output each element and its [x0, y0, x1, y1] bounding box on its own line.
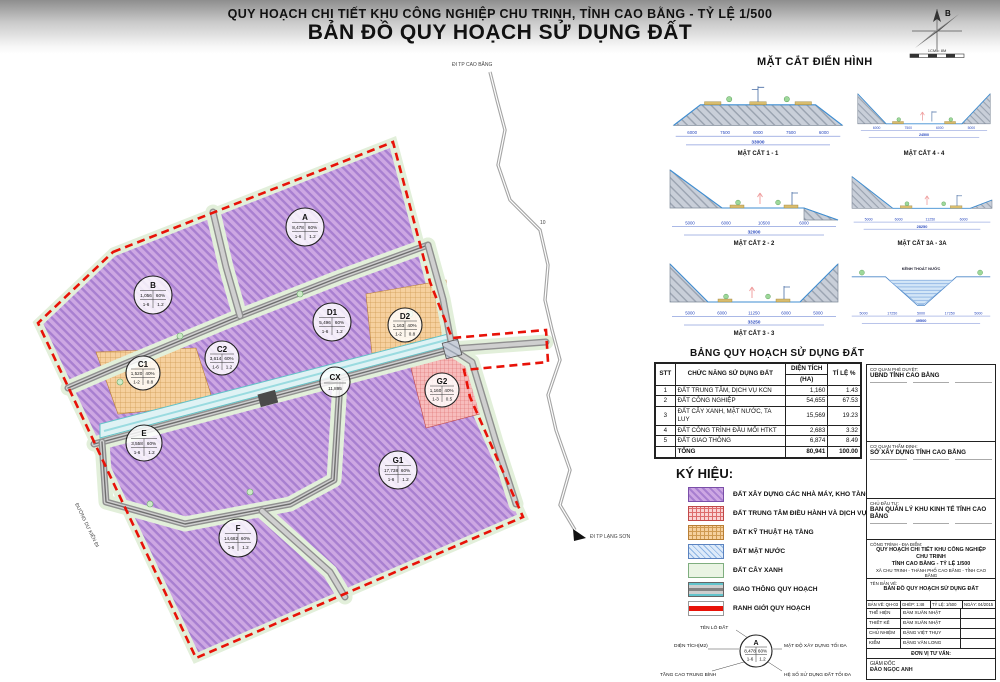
- svg-text:10500: 10500: [758, 221, 771, 226]
- svg-text:6000: 6000: [687, 130, 697, 135]
- zone-name: D1: [327, 308, 338, 317]
- signature-lines: [870, 523, 992, 524]
- zone-far: 1.2: [242, 545, 249, 550]
- zone-name: CX: [329, 373, 341, 382]
- section-drawing: 5000 6000 11250 6000 5000 33250: [663, 252, 845, 328]
- sheet-info-row: BẢN VẼ: QH-03 GHÉP: 1:48 TỶ LỆ: 1/500 NG…: [867, 601, 995, 609]
- zone-far: 1.2: [402, 477, 409, 482]
- svg-text:6000: 6000: [753, 130, 763, 135]
- legend-label: ĐẤT MẶT NƯỚC: [733, 548, 785, 555]
- red-grid-swatch: [688, 506, 724, 521]
- cross-sections-heading: MẶT CẮT ĐIỂN HÌNH: [757, 56, 873, 68]
- zone-name: A: [302, 213, 308, 222]
- zone-label-CX: CX 11,895: [320, 367, 350, 397]
- svg-text:6000: 6000: [819, 130, 829, 135]
- svg-text:5000: 5000: [685, 311, 695, 316]
- zone-floors: 1-6: [134, 450, 141, 455]
- credit-label: THỂ HIỆN: [867, 609, 901, 619]
- label-road-number: 10: [540, 220, 546, 226]
- zone-far: 1.2: [336, 329, 343, 334]
- south-direction-arrow: [573, 529, 586, 541]
- svg-text:11250: 11250: [925, 217, 935, 221]
- director-box: GIÁM ĐỐC ĐÀO NGỌC ANH: [867, 659, 995, 675]
- zone-label-G2: G2 1,160 40% 1-3 0.5: [425, 373, 459, 407]
- sheet-subtitle: QUY HOẠCH CHI TIẾT KHU CÔNG NGHIỆP CHU T…: [0, 0, 1000, 21]
- legend-label: ĐẤT CÂY XANH: [733, 567, 783, 574]
- example-zone-circle: A 8,478 60% 1-6 1.2: [740, 635, 772, 667]
- land-use-map: ĐI TP CAO BẰNG 10 ĐI TP LẠNG SƠN ĐƯỜNG D…: [0, 52, 660, 682]
- svg-text:5000: 5000: [860, 311, 868, 315]
- svg-text:6000: 6000: [895, 217, 903, 221]
- key-far-label: HỆ SỐ SỬ DỤNG ĐẤT TỐI ĐA: [784, 670, 852, 678]
- zone-floors: 1-6: [295, 234, 302, 239]
- svg-text:5000: 5000: [917, 311, 925, 315]
- land-use-table-title: BẢNG QUY HOẠCH SỬ DỤNG ĐẤT: [690, 348, 864, 359]
- zone-density: 40%: [145, 371, 154, 376]
- title-block: CƠ QUAN PHÊ DUYỆT: UBND TỈNH CAO BẰNG CƠ…: [866, 364, 996, 680]
- project-line1: QUY HOẠCH CHI TIẾT KHU CÔNG NGHIỆP CHU T…: [870, 547, 992, 561]
- cross-section-1-1: 6000 7500 6000 7500 6000 33000 MẶT CẮT 1…: [663, 76, 853, 157]
- section-drawing: 6000 7500 6000 7500 6000 33000: [663, 76, 853, 148]
- zone-label-C1: C1 1,520 40% 1-2 0.8: [126, 356, 160, 390]
- svg-text:7500: 7500: [904, 126, 912, 130]
- section-drawing: KÊNH THOÁT NƯỚC 5000 17250 5000 17250 50…: [845, 252, 997, 332]
- svg-text:6000: 6000: [721, 221, 731, 226]
- svg-text:11250: 11250: [748, 311, 760, 316]
- zone-floors: 1-6: [228, 545, 235, 550]
- svg-text:5000: 5000: [968, 126, 976, 130]
- zone-far: 1.2: [148, 450, 155, 455]
- svg-text:6000: 6000: [717, 311, 727, 316]
- key-density-label: MẬT ĐỘ XÂY DỰNG TỐI ĐA: [784, 642, 848, 649]
- key-floors-label: TẦNG CAO TRUNG BÌNH: [660, 671, 717, 678]
- project-line2: TỈNH CAO BẰNG - TỶ LỆ 1/500: [870, 561, 992, 568]
- drawing-name-box: TÊN BẢN VẼ: BẢN ĐỒ QUY HOẠCH SỬ DỤNG ĐẤT: [867, 579, 995, 601]
- section-drawing: 5000 6000 10500 6000 32000: [663, 162, 845, 238]
- legend-heading: KÝ HIỆU:: [676, 466, 733, 481]
- zone-area: 1,163: [393, 323, 405, 328]
- section-caption: MẶT CẮT 3A - 3A: [847, 241, 997, 247]
- legend-label: ĐẤT XÂY DỰNG CÁC NHÀ MÁY, KHO TÀNG: [733, 491, 871, 498]
- credits-grid: THỂ HIỆN ĐÀM XUÂN NHẬT THIẾT KẾ ĐÀM XUÂN…: [867, 609, 995, 649]
- zone-label-key: A 8,478 60% 1-6 1.2 TÊN LÔ ĐẤT DIỆN TÍCH…: [638, 622, 878, 680]
- svg-text:49500: 49500: [916, 318, 927, 323]
- svg-text:28250: 28250: [917, 225, 928, 229]
- table-row: 4ĐẤT CÔNG TRÌNH ĐẦU MỐI HTKT 2,6833.32: [655, 425, 861, 436]
- label-road-north: ĐI TP CAO BẰNG: [452, 60, 492, 68]
- review-name: SỞ XÂY DỰNG TỈNH CAO BẰNG: [870, 449, 992, 456]
- zone-label-D1: D1 5,496 60% 1-6 1.2: [313, 303, 351, 341]
- cross-section-3-3: 5000 6000 11250 6000 5000 33250 MẶT CẮT …: [663, 252, 845, 337]
- col-header-stt: STT: [655, 363, 675, 385]
- legend-label: GIAO THÔNG QUY HOẠCH: [733, 586, 818, 593]
- legend-item: ĐẤT MẶT NƯỚC: [688, 544, 785, 559]
- cross-section-2-2: 5000 6000 10500 6000 32000 MẶT CẮT 2 - 2: [663, 162, 845, 247]
- director-name: ĐÀO NGỌC ANH: [870, 667, 992, 673]
- svg-text:33000: 33000: [751, 139, 764, 145]
- zone-density: 60%: [241, 536, 250, 541]
- project-box: CÔNG TRÌNH - ĐỊA ĐIỂM: QUY HOẠCH CHI TIẾ…: [867, 540, 995, 579]
- zone-floors: 1-6: [388, 477, 395, 482]
- zone-area: 17,738: [384, 468, 398, 473]
- table-row: 1ĐẤT TRUNG TÂM, DỊCH VỤ KCN 1,1601.43: [655, 385, 861, 396]
- scale-bar: [910, 54, 964, 58]
- sheet-scale: TỶ LỆ: 1/500: [931, 601, 963, 609]
- svg-text:6000: 6000: [781, 311, 791, 316]
- label-planned-road: ĐƯỜNG DỰ KIẾN ĐI: [73, 502, 101, 549]
- label-road-south: ĐI TP LẠNG SƠN: [590, 534, 631, 540]
- zone-floors: 1-6: [212, 365, 219, 370]
- zone-name: B: [150, 281, 156, 290]
- credit-value: ĐẶNG VĂN LONG: [901, 639, 961, 649]
- svg-text:5000: 5000: [974, 311, 982, 315]
- sheet-title: BẢN ĐỒ QUY HOẠCH SỬ DỤNG ĐẤT: [0, 21, 1000, 45]
- zone-name: G1: [393, 456, 404, 465]
- table-row: 2ĐẤT CÔNG NGHIỆP 54,65567.53: [655, 396, 861, 407]
- project-line3: XÃ CHU TRINH - THÀNH PHỐ CAO BẰNG - TỈNH…: [870, 568, 992, 578]
- zone-area: 14,682: [224, 536, 238, 541]
- zone-name: F: [236, 524, 241, 533]
- blue-hatch-swatch: [688, 544, 724, 559]
- orange-grid-swatch: [688, 525, 724, 540]
- zone-far: 1.2: [157, 302, 164, 307]
- zone-area: 1,520: [131, 371, 143, 376]
- legend-label: RANH GIỚI QUY HOẠCH: [733, 605, 810, 612]
- zone-label-A: A 8,478 60% 1-6 1.2: [286, 208, 324, 246]
- road-swatch: [688, 582, 724, 597]
- zone-floors: 1-2: [395, 332, 402, 337]
- table-row: 5ĐẤT GIAO THÔNG 6,8748.49: [655, 436, 861, 447]
- zone-label-C2: C2 3,614 60% 1-6 1.2: [205, 341, 239, 375]
- cross-section-channel: KÊNH THOÁT NƯỚC 5000 17250 5000 17250 50…: [845, 252, 997, 337]
- investor-name: BAN QUẢN LÝ KHU KINH TẾ TỈNH CAO BẰNG: [870, 506, 992, 520]
- sheet-date: NGÀY: 04/2015: [963, 601, 995, 609]
- svg-text:6000: 6000: [799, 221, 809, 226]
- section-caption: MẶT CẮT 3 - 3: [663, 331, 845, 337]
- purple-hatch-swatch: [688, 487, 724, 502]
- legend-label: ĐẤT KỸ THUẬT HẠ TẦNG: [733, 529, 814, 536]
- zone-name: C2: [217, 345, 228, 354]
- zone-name: G2: [437, 377, 448, 386]
- zone-label-F: F 14,682 60% 1-6 1.2: [219, 519, 257, 557]
- scale-label: 1CM = 8M: [928, 48, 947, 53]
- zone-far: 0.5: [446, 397, 453, 402]
- key-name-label: TÊN LÔ ĐẤT: [700, 623, 728, 631]
- cross-section-3a-3a: 5000 6000 11250 6000 28250 MẶT CẮT 3A - …: [847, 162, 997, 247]
- signature-lines: [870, 382, 992, 383]
- zone-density: 60%: [335, 320, 344, 325]
- svg-text:6000: 6000: [936, 126, 944, 130]
- north-compass-icon: B 1CM = 8M: [902, 6, 972, 62]
- legend-item: ĐẤT XÂY DỰNG CÁC NHÀ MÁY, KHO TÀNG: [688, 487, 871, 502]
- section-caption: MẶT CẮT 1 - 1: [663, 151, 853, 157]
- zone-density: 40%: [444, 388, 453, 393]
- sheet-header: QUY HOẠCH CHI TIẾT KHU CÔNG NGHIỆP CHU T…: [0, 0, 1000, 54]
- plan-sheet: QUY HOẠCH CHI TIẾT KHU CÔNG NGHIỆP CHU T…: [0, 0, 1000, 682]
- svg-text:33250: 33250: [748, 320, 761, 325]
- channel-label: KÊNH THOÁT NƯỚC: [902, 266, 941, 271]
- zone-density: 60%: [308, 225, 317, 230]
- svg-text:32000: 32000: [748, 230, 761, 235]
- section-caption: MẶT CẮT 4 - 4: [853, 151, 995, 157]
- legend-item: ĐẤT KỸ THUẬT HẠ TẦNG: [688, 525, 814, 540]
- zone-far: 0.8: [147, 380, 154, 385]
- approve-name: UBND TỈNH CAO BẰNG: [870, 372, 992, 379]
- zone-label-G1: G1 17,738 60% 1-6 1.2: [379, 451, 417, 489]
- section-drawing: 5000 6000 11250 6000 28250: [847, 162, 997, 238]
- zone-area: 11,895: [328, 386, 342, 391]
- zone-name: E: [141, 429, 147, 438]
- table-row: 3ĐẤT CÂY XANH, MẶT NƯỚC, TA LUY 15,56919…: [655, 407, 861, 426]
- zone-area: 3,614: [210, 356, 222, 361]
- zone-area: 1,056: [140, 293, 152, 298]
- zone-area: 1,160: [430, 388, 442, 393]
- zone-far: 0.8: [409, 332, 416, 337]
- zone-floors: 1-6: [322, 329, 329, 334]
- drawing-name: BẢN ĐỒ QUY HOẠCH SỬ DỤNG ĐẤT: [870, 586, 992, 593]
- legend-item: GIAO THÔNG QUY HOẠCH: [688, 582, 818, 597]
- zone-density: 40%: [407, 323, 416, 328]
- svg-text:17250: 17250: [945, 311, 955, 315]
- svg-text:17250: 17250: [887, 311, 897, 315]
- zone-floors: 1-3: [432, 397, 439, 402]
- example-area: 8,478: [744, 649, 756, 654]
- table-total-row: TỔNG 80,941100.00: [655, 447, 861, 458]
- key-area-label: DIỆN TÍCH(M2): [674, 641, 708, 649]
- zone-density: 60%: [147, 441, 156, 446]
- zone-area: 8,478: [292, 225, 304, 230]
- approving-agency-box: CƠ QUAN PHÊ DUYỆT: UBND TỈNH CAO BẰNG: [867, 365, 995, 442]
- svg-text:7500: 7500: [786, 130, 796, 135]
- svg-text:5000: 5000: [685, 221, 695, 226]
- credit-value: ĐÀM XUÂN NHẬT: [901, 619, 961, 629]
- svg-text:6000: 6000: [960, 217, 968, 221]
- zone-area: 5,496: [319, 320, 331, 325]
- zone-label-E: E 3,558 60% 1-6 1.2: [126, 425, 162, 461]
- example-floors: 1-6: [747, 657, 754, 662]
- col-header-area-unit: (HA): [786, 374, 828, 385]
- zone-density: 60%: [401, 468, 410, 473]
- red-line-swatch: [688, 601, 724, 616]
- svg-text:7500: 7500: [720, 130, 730, 135]
- section-drawing: 6000 7500 6000 5000 24500: [853, 76, 995, 148]
- compass-north-label: B: [945, 9, 951, 18]
- zone-density: 60%: [224, 356, 233, 361]
- zone-name: C1: [138, 360, 149, 369]
- credit-value: ĐẶNG VIỆT THỤY: [901, 629, 961, 639]
- zone-label-D2: D2 1,163 40% 1-2 0.8: [388, 308, 422, 342]
- sheet-number: BẢN VẼ: QH-03: [867, 601, 901, 609]
- consultant-label: ĐƠN VỊ TƯ VẤN:: [867, 649, 995, 659]
- zone-name: D2: [400, 312, 411, 321]
- credit-value: ĐÀM XUÂN NHẬT: [901, 609, 961, 619]
- land-use-table: STT CHỨC NĂNG SỬ DỤNG ĐẤT DIỆN TÍCH TỈ L…: [654, 362, 862, 459]
- legend-item: RANH GIỚI QUY HOẠCH: [688, 601, 810, 616]
- zone-floors: 1-2: [133, 380, 140, 385]
- investor-box: CHỦ ĐẦU TƯ: BAN QUẢN LÝ KHU KINH TẾ TỈNH…: [867, 499, 995, 540]
- review-agency-box: CƠ QUAN THẨM ĐỊNH: SỞ XÂY DỰNG TỈNH CAO …: [867, 442, 995, 499]
- cross-section-4-4: 6000 7500 6000 5000 24500 MẶT CẮT 4 - 4: [853, 76, 995, 157]
- example-name: A: [753, 640, 758, 647]
- col-header-function: CHỨC NĂNG SỬ DỤNG ĐẤT: [675, 363, 786, 385]
- zone-label-B: B 1,056 60% 1-6 1.2: [134, 276, 172, 314]
- svg-text:24500: 24500: [919, 133, 929, 137]
- svg-text:5000: 5000: [813, 311, 823, 316]
- zone-far: 1.2: [226, 365, 233, 370]
- zone-area: 3,558: [131, 441, 143, 446]
- sheet-merge: GHÉP: 1:48: [901, 601, 931, 609]
- svg-text:5000: 5000: [865, 217, 873, 221]
- example-far: 1.2: [759, 657, 766, 662]
- legend-item: ĐẤT CÂY XANH: [688, 563, 783, 578]
- section-caption: MẶT CẮT 2 - 2: [663, 241, 845, 247]
- col-header-ratio: TỈ LỆ %: [828, 363, 861, 385]
- green-swatch: [688, 563, 724, 578]
- zone-floors: 1-6: [143, 302, 150, 307]
- col-header-area: DIỆN TÍCH: [786, 363, 828, 374]
- svg-text:6000: 6000: [873, 126, 881, 130]
- zone-density: 60%: [156, 293, 165, 298]
- example-density: 60%: [758, 649, 767, 654]
- signature-lines: [870, 459, 992, 460]
- zone-far: 1.2: [309, 234, 316, 239]
